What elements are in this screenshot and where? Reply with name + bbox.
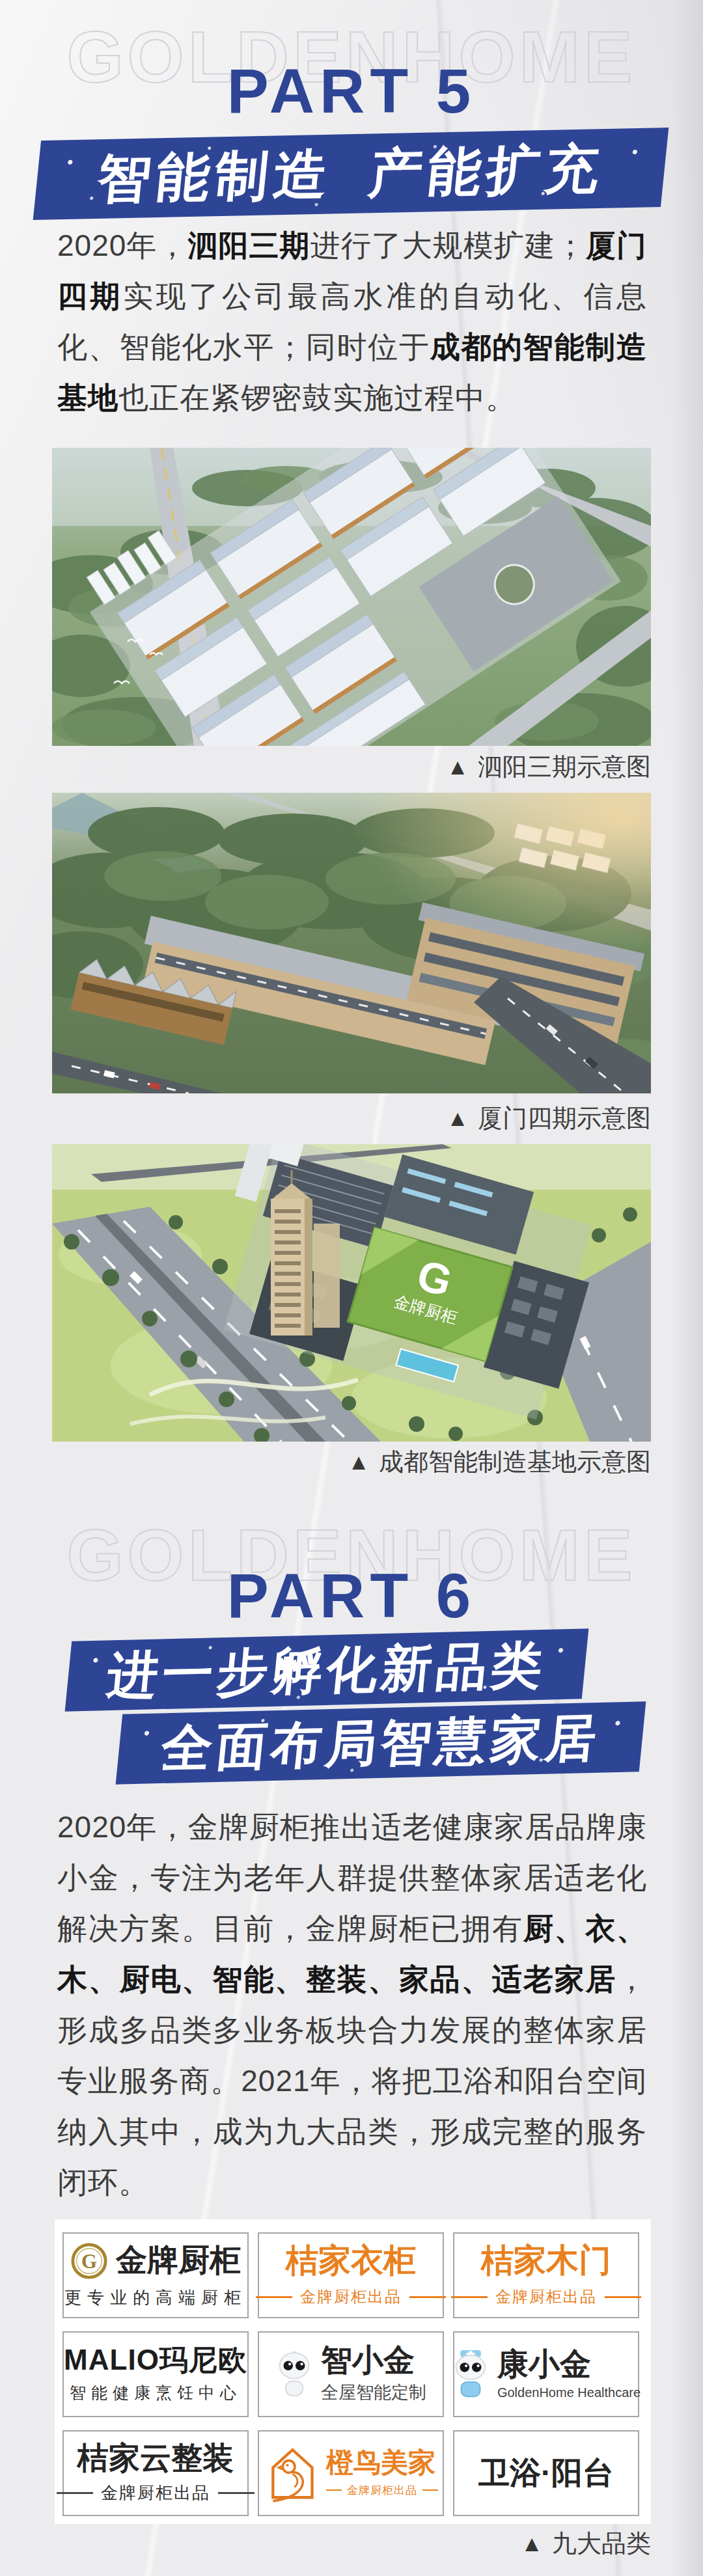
dash-line: [409, 2296, 446, 2298]
caption-text: 成都智能制造基地示意图: [379, 1447, 651, 1477]
xiamen-phase4-illustration: [52, 793, 651, 1093]
brand-name: 橙鸟美家: [326, 2448, 435, 2477]
nine-categories-brand-grid: G 金牌厨柜 更专业的高端厨柜 桔家衣柜 金牌厨柜出品 桔家木门 金牌厨柜出品: [55, 2219, 651, 2524]
brand-name: 康小金: [497, 2348, 591, 2381]
brand-name: 桔家衣柜: [286, 2243, 416, 2278]
dash-line: [218, 2492, 255, 2494]
brand-cell-chengniao: 橙鸟美家 金牌厨柜出品: [258, 2430, 444, 2516]
paragraph-segment-bold: 泗阳三期: [187, 228, 310, 262]
triangle-icon: ▲: [348, 1449, 370, 1475]
brand-tagline: 金牌厨柜出品: [495, 2286, 597, 2307]
part5-banner: 智能制造 产能扩充: [33, 128, 669, 220]
brand-cell-goldenhome: G 金牌厨柜 更专业的高端厨柜: [62, 2232, 249, 2318]
dash-line: [605, 2296, 641, 2298]
svg-text:G: G: [81, 2249, 97, 2272]
paragraph-segment: 2020年，: [57, 228, 187, 262]
part6-banner-line2: 全面布局智慧家居: [116, 1701, 646, 1785]
paragraph-segment: ，形成多品类多业务板块合力发展的整体家居专业服务商。2021年，将把卫浴和阳台空…: [57, 1962, 647, 2199]
banner-text: 进一步孵化新品类: [105, 1639, 548, 1701]
brand-cell-jujia-cloud: 桔家云整装 金牌厨柜出品: [62, 2430, 249, 2516]
dash-line: [57, 2492, 93, 2494]
brand-cell-kangxiaojin: 康小金 GoldenHome Healthcare: [453, 2331, 639, 2417]
brand-tagline: GoldenHome Healthcare: [497, 2385, 641, 2400]
siyang-phase3-illustration: [52, 448, 651, 746]
triangle-icon: ▲: [447, 754, 469, 780]
nurse-robot-mascot-icon: [452, 2350, 489, 2399]
goldenhome-g-coin-icon: G: [70, 2242, 108, 2280]
triangle-icon: ▲: [521, 2530, 543, 2557]
part6-banner-line1: 进一步孵化新品类: [65, 1628, 589, 1711]
brand-cell-jujia-doors: 桔家木门 金牌厨柜出品: [453, 2232, 639, 2318]
part6-paragraph: 2020年，金牌厨柜推出适老健康家居品牌康小金，专注为老年人群提供整体家居适老化…: [57, 1802, 647, 2208]
brand-cell-zhixiaojin: 智小金 全屋智能定制: [258, 2331, 444, 2417]
brand-tagline: 智能健康烹饪中心: [70, 2382, 241, 2404]
robot-mascot-icon: [275, 2350, 313, 2399]
brand-tagline: 金牌厨柜出品: [300, 2286, 402, 2307]
brand-tagline: 更专业的高端厨柜: [64, 2286, 247, 2309]
siyang-phase3-rendering: [52, 448, 651, 746]
paragraph-segment: 进行了大规模扩建；: [310, 228, 586, 262]
brand-name: 金牌厨柜: [116, 2244, 241, 2277]
triangle-icon: ▲: [447, 1105, 469, 1132]
brand-name: 桔家云整装: [77, 2442, 234, 2474]
chengdu-base-rendering: G 金牌厨柜: [52, 1144, 651, 1442]
banner-text: 全面布局智慧家居: [159, 1712, 602, 1774]
banner-text-right: 产能扩充: [366, 142, 607, 200]
dash-line: [422, 2489, 438, 2491]
xiamen-phase4-rendering: [52, 793, 651, 1093]
paragraph-segment: 也正在紧锣密鼓实施过程中。: [118, 381, 516, 415]
chengdu-base-illustration: G 金牌厨柜: [52, 1144, 651, 1442]
caption-text: 泗阳三期示意图: [478, 752, 651, 782]
caption-text: 九大品类: [552, 2529, 651, 2559]
dash-line: [256, 2296, 292, 2298]
brand-tagline: 全屋智能定制: [321, 2381, 426, 2404]
brand-name: 卫浴·阳台: [478, 2457, 614, 2489]
brand-tagline: 金牌厨柜出品: [347, 2483, 417, 2498]
part6-title: PART 6: [0, 1565, 703, 1627]
xiamen-caption: ▲ 厦门四期示意图: [447, 1104, 651, 1134]
brand-cell-malio: MALIO玛尼欧 智能健康烹饪中心: [62, 2331, 249, 2417]
brand-tagline: 金牌厨柜出品: [101, 2482, 210, 2504]
brand-cell-bathroom-balcony: 卫浴·阳台: [453, 2430, 639, 2516]
brand-name: MALIO玛尼欧: [64, 2345, 247, 2375]
goldenhome-annual-report-poster: GOLDENHOME PART 5 智能制造 产能扩充 2020年，泗阳三期进行…: [0, 0, 703, 2576]
dash-line: [451, 2296, 488, 2298]
nine-categories-caption: ▲ 九大品类: [521, 2529, 651, 2559]
brand-cell-jujia-wardrobe: 桔家衣柜 金牌厨柜出品: [258, 2232, 444, 2318]
part5-title: PART 5: [0, 60, 703, 122]
brand-name: 桔家木门: [481, 2243, 611, 2278]
banner-text-left: 智能制造: [95, 148, 335, 206]
orange-bird-house-icon: [264, 2443, 320, 2503]
dash-line: [326, 2489, 342, 2491]
chengdu-caption: ▲ 成都智能制造基地示意图: [348, 1447, 651, 1477]
siyang-caption: ▲ 泗阳三期示意图: [447, 752, 651, 782]
caption-text: 厦门四期示意图: [478, 1104, 651, 1134]
brand-name: 智小金: [321, 2344, 415, 2377]
part5-paragraph: 2020年，泗阳三期进行了大规模扩建；厦门四期实现了公司最高水准的自动化、信息化…: [57, 220, 647, 423]
